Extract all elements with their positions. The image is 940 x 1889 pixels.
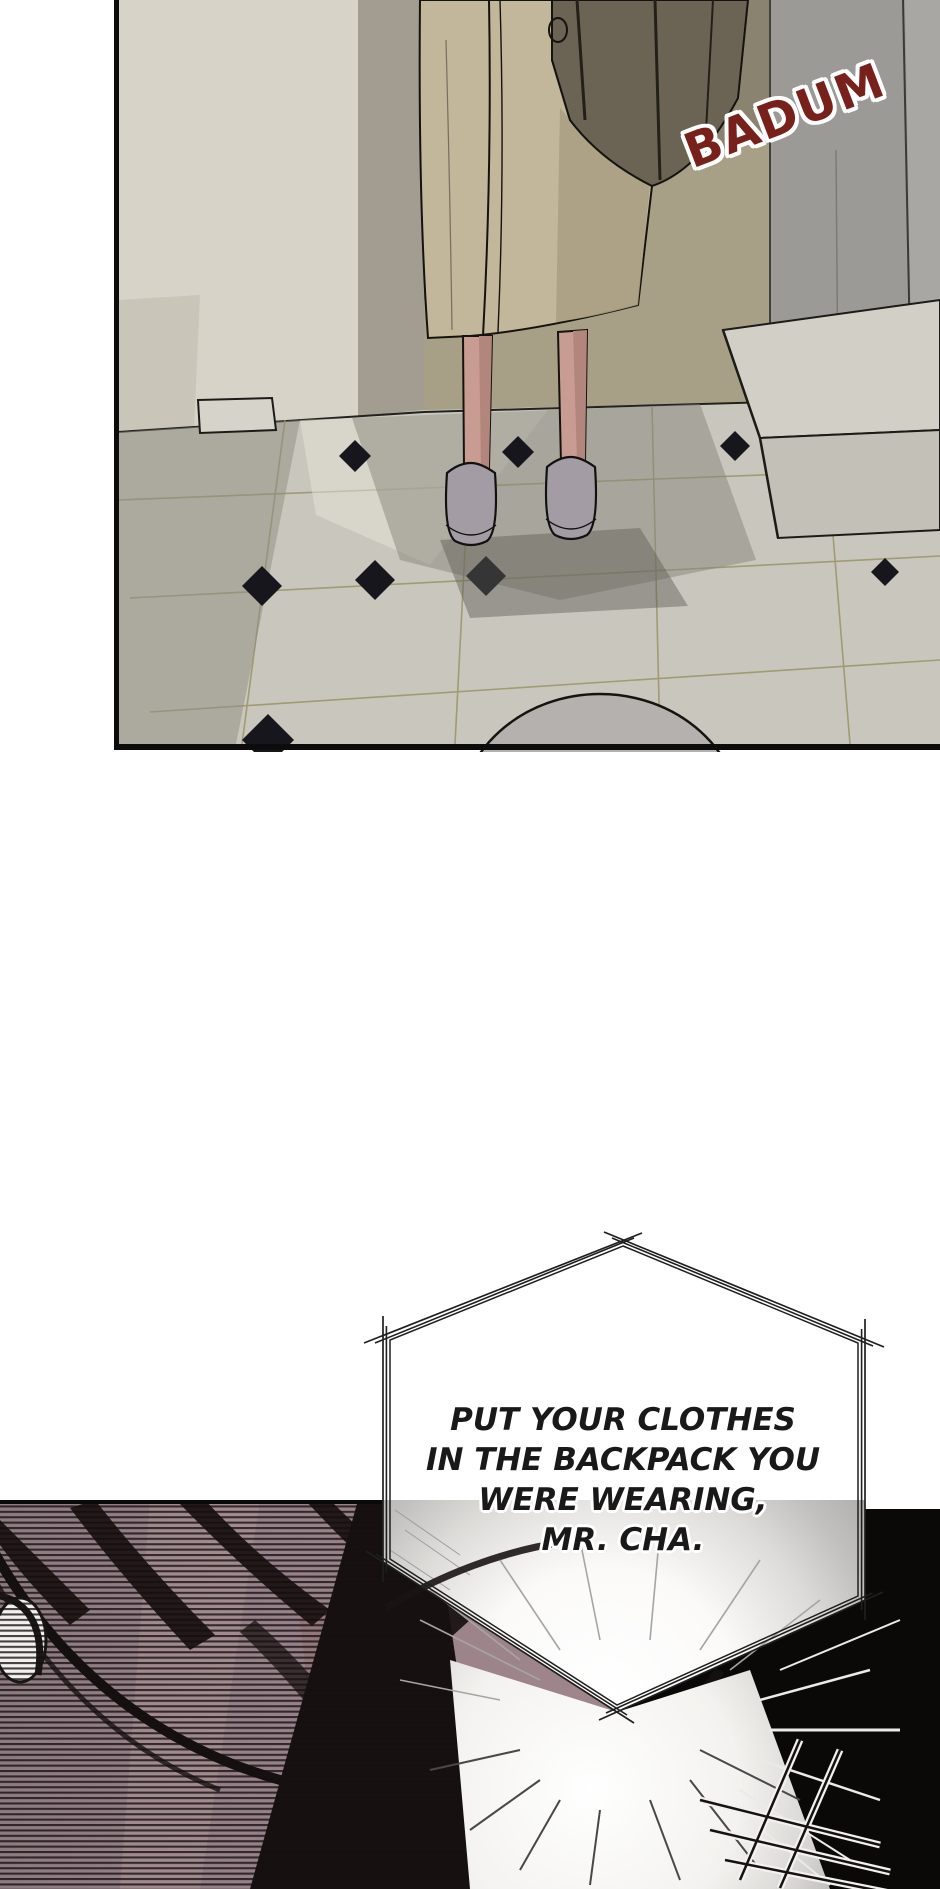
closeup-art (0, 1500, 940, 1889)
door-sill (198, 398, 276, 433)
comic-page: BADUM (0, 0, 940, 1889)
scene-top-line (0, 1500, 383, 1504)
white-sliver (865, 1500, 940, 1509)
panel-closeup (0, 1500, 940, 1889)
bubble-line-1: PUT YOUR CLOTHES (390, 1400, 856, 1440)
panel-entryway: BADUM (0, 0, 940, 752)
bubble-line-2: IN THE BACKPACK YOU (390, 1440, 856, 1480)
